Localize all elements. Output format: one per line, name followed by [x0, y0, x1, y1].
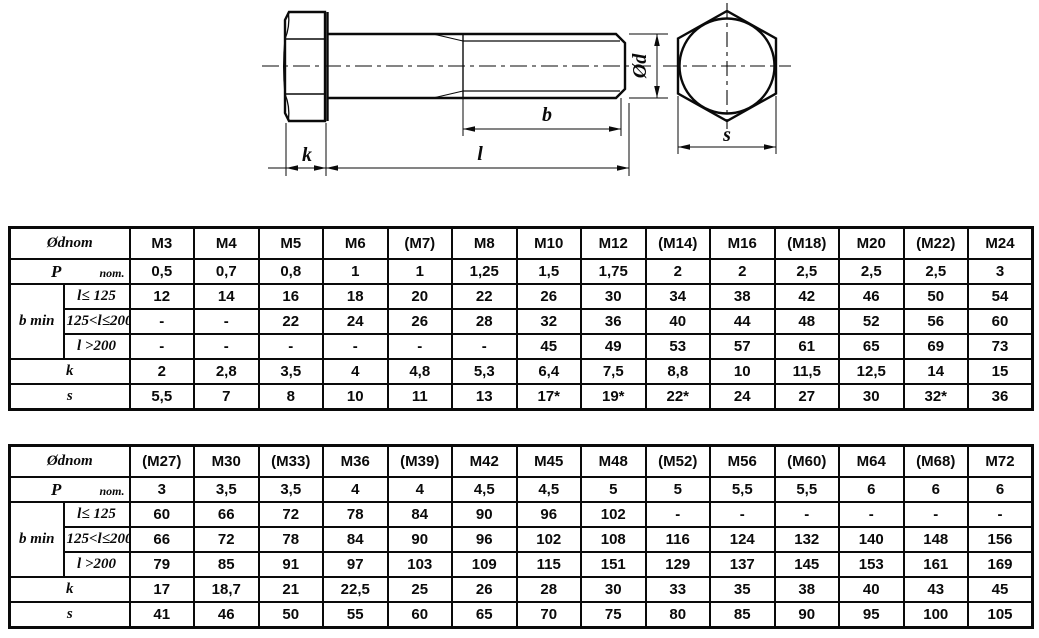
value-cell: 97: [323, 552, 388, 577]
value-cell: 132: [775, 527, 840, 552]
value-cell: 80: [646, 602, 711, 628]
value-cell: 46: [839, 284, 904, 309]
value-cell: 8,8: [646, 359, 711, 384]
value-cell: 40: [839, 577, 904, 602]
value-cell: 3: [968, 259, 1033, 284]
value-cell: 38: [775, 577, 840, 602]
bmin-sublabel-2: 125<l≤200: [64, 527, 130, 552]
k-row-label: k: [10, 577, 130, 602]
size-col-header: M10: [517, 228, 582, 260]
value-cell: 1,75: [581, 259, 646, 284]
value-cell: 35: [710, 577, 775, 602]
value-cell: 95: [839, 602, 904, 628]
value-cell: 4: [323, 477, 388, 502]
value-cell: 2,5: [904, 259, 969, 284]
size-col-header: M48: [581, 446, 646, 478]
value-cell: 22*: [646, 384, 711, 410]
value-cell: 55: [323, 602, 388, 628]
value-cell: -: [710, 502, 775, 527]
value-cell: 90: [775, 602, 840, 628]
size-col-header: (M27): [130, 446, 195, 478]
value-cell: 161: [904, 552, 969, 577]
value-cell: 7: [194, 384, 259, 410]
value-cell: 30: [581, 284, 646, 309]
value-cell: 12: [130, 284, 195, 309]
value-cell: 22: [259, 309, 324, 334]
value-cell: 102: [517, 527, 582, 552]
value-cell: 4: [323, 359, 388, 384]
value-cell: 5,3: [452, 359, 517, 384]
value-cell: 11,5: [775, 359, 840, 384]
value-cell: 102: [581, 502, 646, 527]
value-cell: 129: [646, 552, 711, 577]
value-cell: 40: [646, 309, 711, 334]
value-cell: 75: [581, 602, 646, 628]
value-cell: 6: [904, 477, 969, 502]
size-col-header: M16: [710, 228, 775, 260]
value-cell: 11: [388, 384, 453, 410]
value-cell: 0,8: [259, 259, 324, 284]
value-cell: 4,8: [388, 359, 453, 384]
value-cell: 56: [904, 309, 969, 334]
size-col-header: M56: [710, 446, 775, 478]
kl-extension-lines: [286, 103, 629, 176]
value-cell: 78: [259, 527, 324, 552]
corner-label: Ødnom: [10, 228, 130, 260]
value-cell: 96: [452, 527, 517, 552]
value-cell: 14: [194, 284, 259, 309]
value-cell: 72: [259, 502, 324, 527]
value-cell: 3,5: [194, 477, 259, 502]
value-cell: 8: [259, 384, 324, 410]
size-col-header: M5: [259, 228, 324, 260]
value-cell: 26: [517, 284, 582, 309]
bolt-side-view: [262, 12, 668, 176]
value-cell: 43: [904, 577, 969, 602]
value-cell: 25: [388, 577, 453, 602]
value-cell: 116: [646, 527, 711, 552]
value-cell: 45: [968, 577, 1033, 602]
pitch-sublabel: nom.: [99, 263, 126, 279]
value-cell: 18: [323, 284, 388, 309]
k-row-label: k: [10, 359, 130, 384]
value-cell: -: [968, 502, 1033, 527]
value-cell: 3,5: [259, 477, 324, 502]
dim-label-k: k: [302, 144, 312, 166]
value-cell: 28: [517, 577, 582, 602]
value-cell: 115: [517, 552, 582, 577]
value-cell: 52: [839, 309, 904, 334]
value-cell: 1,5: [517, 259, 582, 284]
value-cell: 2: [130, 359, 195, 384]
pitch-sublabel: nom.: [99, 481, 126, 497]
value-cell: -: [839, 502, 904, 527]
value-cell: 140: [839, 527, 904, 552]
value-cell: 91: [259, 552, 324, 577]
value-cell: 85: [710, 602, 775, 628]
value-cell: 3,5: [259, 359, 324, 384]
value-cell: -: [259, 334, 324, 359]
value-cell: 79: [130, 552, 195, 577]
value-cell: 32: [517, 309, 582, 334]
value-cell: 21: [259, 577, 324, 602]
value-cell: 169: [968, 552, 1033, 577]
size-col-header: (M60): [775, 446, 840, 478]
bmin-label: b min: [10, 284, 64, 359]
value-cell: 20: [388, 284, 453, 309]
value-cell: 24: [710, 384, 775, 410]
size-col-header: M12: [581, 228, 646, 260]
value-cell: 137: [710, 552, 775, 577]
value-cell: 2,5: [839, 259, 904, 284]
value-cell: 6: [968, 477, 1033, 502]
value-cell: 66: [130, 527, 195, 552]
value-cell: 10: [323, 384, 388, 410]
value-cell: 109: [452, 552, 517, 577]
value-cell: 50: [259, 602, 324, 628]
value-cell: 1,25: [452, 259, 517, 284]
value-cell: 5: [646, 477, 711, 502]
size-col-header: (M33): [259, 446, 324, 478]
value-cell: 73: [968, 334, 1033, 359]
value-cell: 4,5: [452, 477, 517, 502]
value-cell: 50: [904, 284, 969, 309]
value-cell: 60: [388, 602, 453, 628]
bmin-sublabel-3: l >200: [64, 334, 130, 359]
size-col-header: M36: [323, 446, 388, 478]
value-cell: -: [388, 334, 453, 359]
value-cell: 2: [710, 259, 775, 284]
value-cell: 108: [581, 527, 646, 552]
value-cell: -: [130, 334, 195, 359]
value-cell: 100: [904, 602, 969, 628]
value-cell: 5: [581, 477, 646, 502]
value-cell: 3: [130, 477, 195, 502]
bmin-sublabel-1: l≤ 125: [64, 502, 130, 527]
value-cell: -: [904, 502, 969, 527]
value-cell: 2,8: [194, 359, 259, 384]
size-col-header: M4: [194, 228, 259, 260]
bolt-drawing: k l b Ød s: [0, 0, 1039, 214]
value-cell: 153: [839, 552, 904, 577]
value-cell: 17: [130, 577, 195, 602]
dim-label-d: Ød: [629, 53, 651, 79]
value-cell: 26: [388, 309, 453, 334]
size-col-header: M30: [194, 446, 259, 478]
value-cell: 156: [968, 527, 1033, 552]
dim-label-l: l: [477, 143, 483, 165]
corner-label: Ødnom: [10, 446, 130, 478]
value-cell: 16: [259, 284, 324, 309]
value-cell: 34: [646, 284, 711, 309]
value-cell: 84: [323, 527, 388, 552]
bolt-dimension-sheet: k l b Ød s ØdnomM3M4M5M6(M7)M8M10M12(M14…: [0, 0, 1039, 638]
value-cell: 53: [646, 334, 711, 359]
value-cell: 57: [710, 334, 775, 359]
value-cell: 0,7: [194, 259, 259, 284]
value-cell: 2,5: [775, 259, 840, 284]
value-cell: 24: [323, 309, 388, 334]
value-cell: 19*: [581, 384, 646, 410]
value-cell: 148: [904, 527, 969, 552]
value-cell: 61: [775, 334, 840, 359]
value-cell: 4,5: [517, 477, 582, 502]
value-cell: 36: [581, 309, 646, 334]
value-cell: 14: [904, 359, 969, 384]
value-cell: 27: [775, 384, 840, 410]
value-cell: 38: [710, 284, 775, 309]
value-cell: 13: [452, 384, 517, 410]
value-cell: 1: [323, 259, 388, 284]
value-cell: 45: [517, 334, 582, 359]
size-col-header: M42: [452, 446, 517, 478]
value-cell: 49: [581, 334, 646, 359]
value-cell: 18,7: [194, 577, 259, 602]
value-cell: -: [130, 309, 195, 334]
value-cell: -: [452, 334, 517, 359]
value-cell: 12,5: [839, 359, 904, 384]
value-cell: -: [194, 334, 259, 359]
value-cell: 84: [388, 502, 453, 527]
value-cell: 2: [646, 259, 711, 284]
value-cell: 32*: [904, 384, 969, 410]
size-table-m3-m24: ØdnomM3M4M5M6(M7)M8M10M12(M14)M16(M18)M2…: [8, 226, 1034, 411]
dim-label-b: b: [542, 104, 552, 126]
size-col-header: M3: [130, 228, 195, 260]
value-cell: 54: [968, 284, 1033, 309]
value-cell: 145: [775, 552, 840, 577]
value-cell: 60: [130, 502, 195, 527]
value-cell: 10: [710, 359, 775, 384]
dim-label-s: s: [722, 124, 731, 146]
value-cell: 42: [775, 284, 840, 309]
value-cell: 5,5: [710, 477, 775, 502]
value-cell: 1: [388, 259, 453, 284]
value-cell: 65: [839, 334, 904, 359]
pitch-row-label: Pnom.: [10, 259, 130, 284]
pitch-label: P: [51, 262, 61, 281]
size-col-header: M45: [517, 446, 582, 478]
value-cell: 22,5: [323, 577, 388, 602]
value-cell: 30: [581, 577, 646, 602]
value-cell: 66: [194, 502, 259, 527]
value-cell: 48: [775, 309, 840, 334]
s-row-label: s: [10, 602, 130, 628]
value-cell: 41: [130, 602, 195, 628]
size-col-header: M24: [968, 228, 1033, 260]
value-cell: 36: [968, 384, 1033, 410]
value-cell: 22: [452, 284, 517, 309]
pitch-row-label: Pnom.: [10, 477, 130, 502]
value-cell: 30: [839, 384, 904, 410]
size-col-header: (M52): [646, 446, 711, 478]
value-cell: 17*: [517, 384, 582, 410]
size-col-header: M72: [968, 446, 1033, 478]
value-cell: -: [646, 502, 711, 527]
size-col-header: M64: [839, 446, 904, 478]
size-col-header: M8: [452, 228, 517, 260]
value-cell: 5,5: [775, 477, 840, 502]
size-col-header: M20: [839, 228, 904, 260]
pitch-label: P: [51, 480, 61, 499]
value-cell: 60: [968, 309, 1033, 334]
bmin-label: b min: [10, 502, 64, 577]
dimension-arrowheads: [286, 34, 776, 171]
value-cell: 124: [710, 527, 775, 552]
bmin-sublabel-1: l≤ 125: [64, 284, 130, 309]
value-cell: 151: [581, 552, 646, 577]
size-col-header: (M7): [388, 228, 453, 260]
size-col-header: (M39): [388, 446, 453, 478]
value-cell: 78: [323, 502, 388, 527]
value-cell: 46: [194, 602, 259, 628]
size-col-header: (M68): [904, 446, 969, 478]
value-cell: -: [194, 309, 259, 334]
bmin-sublabel-3: l >200: [64, 552, 130, 577]
s-row-label: s: [10, 384, 130, 410]
value-cell: 6,4: [517, 359, 582, 384]
size-col-header: (M18): [775, 228, 840, 260]
value-cell: -: [323, 334, 388, 359]
value-cell: 33: [646, 577, 711, 602]
value-cell: 96: [517, 502, 582, 527]
value-cell: 70: [517, 602, 582, 628]
value-cell: -: [775, 502, 840, 527]
value-cell: 90: [388, 527, 453, 552]
value-cell: 65: [452, 602, 517, 628]
value-cell: 44: [710, 309, 775, 334]
value-cell: 5,5: [130, 384, 195, 410]
value-cell: 69: [904, 334, 969, 359]
value-cell: 85: [194, 552, 259, 577]
value-cell: 103: [388, 552, 453, 577]
value-cell: 0,5: [130, 259, 195, 284]
size-col-header: (M22): [904, 228, 969, 260]
value-cell: 6: [839, 477, 904, 502]
value-cell: 4: [388, 477, 453, 502]
value-cell: 28: [452, 309, 517, 334]
value-cell: 15: [968, 359, 1033, 384]
size-col-header: (M14): [646, 228, 711, 260]
size-table-m27-m72: Ødnom(M27)M30(M33)M36(M39)M42M45M48(M52)…: [8, 444, 1034, 629]
bmin-sublabel-2: 125<l≤200: [64, 309, 130, 334]
value-cell: 90: [452, 502, 517, 527]
value-cell: 72: [194, 527, 259, 552]
value-cell: 7,5: [581, 359, 646, 384]
value-cell: 105: [968, 602, 1033, 628]
size-col-header: M6: [323, 228, 388, 260]
value-cell: 26: [452, 577, 517, 602]
